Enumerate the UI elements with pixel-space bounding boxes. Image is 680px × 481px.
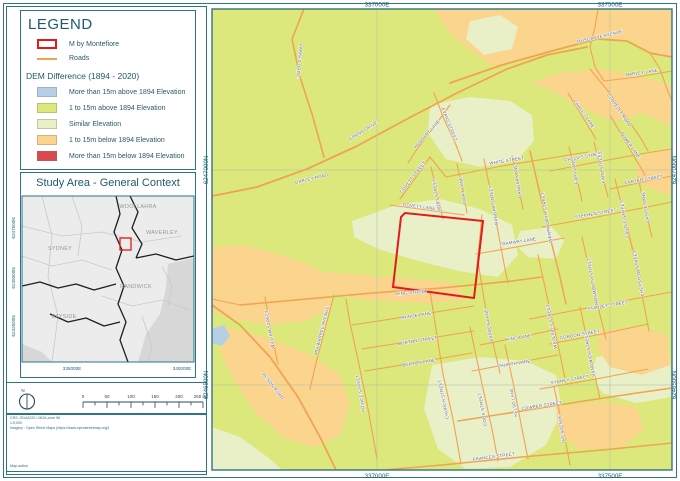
scale-tick-label: 50 bbox=[104, 394, 110, 399]
dem-classes: More than 15m above 1894 Elevation1 to 1… bbox=[21, 87, 195, 161]
scale-tick-label: 100 bbox=[127, 394, 135, 399]
legend-item: Roads bbox=[37, 55, 195, 62]
legend-title: LEGEND bbox=[28, 16, 195, 33]
dem-class-item: 1 to 15m below 1894 Elevation bbox=[37, 135, 195, 145]
dem-class-label: 1 to 15m below 1894 Elevation bbox=[69, 137, 165, 144]
northing-label-left: 6247000N bbox=[203, 156, 210, 185]
main-map: MUSGRAVE AVENUEDARLEY LANECLOVELLY ROADC… bbox=[196, 0, 680, 481]
legend-panel: LEGEND M by MontefioreRoads DEM Differen… bbox=[20, 10, 196, 170]
map-layout-page: LEGEND M by MontefioreRoads DEM Differen… bbox=[0, 0, 680, 481]
scale-tick-label: 0 bbox=[82, 394, 85, 399]
dem-class-swatch bbox=[37, 135, 57, 145]
easting-label-bottom: 337500E bbox=[598, 473, 623, 480]
site-outline-swatch bbox=[37, 39, 57, 49]
legend-item: M by Montefiore bbox=[37, 39, 195, 49]
scale-note: 1:5,000 bbox=[10, 421, 206, 425]
north-label: N bbox=[21, 388, 24, 393]
north-scale-panel: N050100150200250 m bbox=[6, 382, 207, 414]
dem-class-label: Similar Elevation bbox=[69, 121, 121, 128]
crs-note: CRS: GDA2020 / MGA zone 56 bbox=[10, 416, 206, 420]
map-notes-panel: CRS: GDA2020 / MGA zone 56 1:5,000 Image… bbox=[6, 414, 207, 472]
scale-bar: N050100150200250 m bbox=[7, 383, 206, 413]
northing-label-left: 6246500N bbox=[203, 371, 210, 400]
scale-tick-label: 200 bbox=[175, 394, 183, 399]
dem-class-swatch bbox=[37, 151, 57, 161]
dem-class-label: More than 15m above 1894 Elevation bbox=[69, 89, 185, 96]
legend-item-label: Roads bbox=[69, 55, 89, 62]
dem-class-item: More than 15m above 1894 Elevation bbox=[37, 87, 195, 97]
dem-class-label: More than 15m below 1894 Elevation bbox=[69, 153, 185, 160]
scale-tick-label: 150 bbox=[151, 394, 159, 399]
roads-swatch bbox=[37, 58, 57, 60]
dem-class-swatch bbox=[37, 87, 57, 97]
dem-class-swatch bbox=[37, 119, 57, 129]
dem-class-swatch bbox=[37, 103, 57, 113]
imagery-note: Imagery : Open Street Maps (https://www.… bbox=[10, 426, 206, 430]
dem-difference-heading: DEM Difference (1894 - 2020) bbox=[26, 71, 195, 81]
legend-item-label: M by Montefiore bbox=[69, 41, 119, 48]
dem-class-item: 1 to 15m above 1894 Elevation bbox=[37, 103, 195, 113]
dem-class-item: Similar Elevation bbox=[37, 119, 195, 129]
study-area-panel: Study Area - General Context bbox=[20, 172, 196, 378]
northing-label-right: 6246500N bbox=[671, 371, 678, 400]
study-area-title: Study Area - General Context bbox=[21, 177, 195, 189]
legend-items: M by MontefioreRoads bbox=[21, 39, 195, 62]
author-credit: Map author bbox=[10, 464, 28, 468]
northing-label-right: 6247000N bbox=[671, 156, 678, 185]
easting-label-top: 337500E bbox=[598, 2, 623, 9]
easting-label-top: 337000E bbox=[365, 2, 390, 9]
dem-class-item: More than 15m below 1894 Elevation bbox=[37, 151, 195, 161]
dem-class-label: 1 to 15m above 1894 Elevation bbox=[69, 105, 166, 112]
easting-label-bottom: 337000E bbox=[365, 473, 390, 480]
